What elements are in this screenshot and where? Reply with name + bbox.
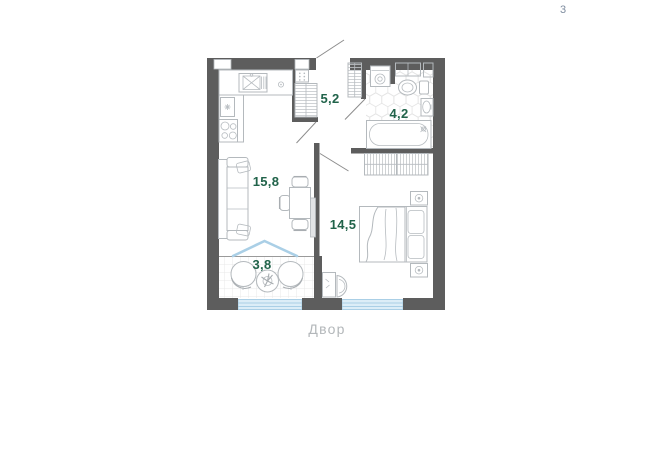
- floor-plan-page: 15,8 5,2 4,2 14,5 3,8 Двор 3: [0, 0, 654, 470]
- vent-niche: [295, 60, 309, 70]
- toilet: [399, 80, 429, 95]
- dressing-console: [323, 273, 336, 298]
- room-area-label-hallway: 5,2: [321, 91, 340, 106]
- courtyard-label: Двор: [308, 321, 345, 337]
- counter-socket-icon: [278, 82, 283, 87]
- vent-niche: [214, 60, 231, 70]
- hallway-furniture: [295, 63, 362, 117]
- floor-plan-canvas: 15,8 5,2 4,2 14,5 3,8 Двор 3: [0, 0, 654, 470]
- wall-bottom-right: [403, 298, 445, 310]
- stove-icon: [219, 120, 238, 143]
- tv: [311, 198, 316, 237]
- hallway-wardrobe-left: [295, 84, 317, 118]
- room-area-label-balcony: 3,8: [253, 257, 272, 272]
- bedroom-door-swing-line: [320, 154, 349, 172]
- balcony-window-glazing: [238, 300, 302, 310]
- dining-table: [290, 188, 311, 219]
- room-area-label-living-kitchen: 15,8: [253, 174, 280, 189]
- wall-right: [433, 70, 445, 310]
- wall-bottom-left: [207, 298, 238, 310]
- wall-left: [207, 70, 219, 310]
- balcony-door-glazing: [233, 241, 297, 256]
- fridge-icon: [221, 98, 235, 117]
- wall-bathroom-stub: [390, 58, 395, 84]
- shoe-cabinet: [296, 70, 309, 82]
- living-room-furniture: [219, 158, 316, 241]
- wall-top-right: [350, 58, 445, 70]
- balcony-table: [257, 270, 279, 292]
- bathtub: [367, 121, 432, 149]
- bathroom-sink: [421, 99, 433, 117]
- bed: [360, 207, 428, 263]
- living-door-swing-line: [297, 122, 317, 143]
- dressing-chair: [337, 276, 347, 298]
- nightstand: [411, 264, 428, 278]
- wall-hallway-stub: [292, 117, 318, 122]
- entrance-door-swing-line: [317, 40, 345, 58]
- dining-table-set: [280, 177, 311, 231]
- room-area-label-bedroom: 14,5: [330, 217, 357, 232]
- dining-chair: [292, 220, 308, 230]
- bedroom-wardrobe: [365, 154, 429, 176]
- kitchen-furniture: [219, 70, 293, 142]
- hallway-wardrobe-right: [348, 63, 362, 97]
- dining-chair: [292, 177, 308, 187]
- room-area-label-bathroom: 4,2: [390, 106, 409, 121]
- bedroom-window-glazing: [342, 300, 403, 310]
- page-number: 3: [560, 4, 566, 16]
- washing-machine-icon: [371, 66, 391, 87]
- bathroom-door-swing-line: [345, 99, 365, 120]
- kitchen-sink: [239, 74, 267, 93]
- nightstand: [411, 192, 428, 206]
- wall-balcony-bedroom: [314, 256, 322, 310]
- sofa: [219, 158, 252, 241]
- dining-chair: [280, 196, 290, 211]
